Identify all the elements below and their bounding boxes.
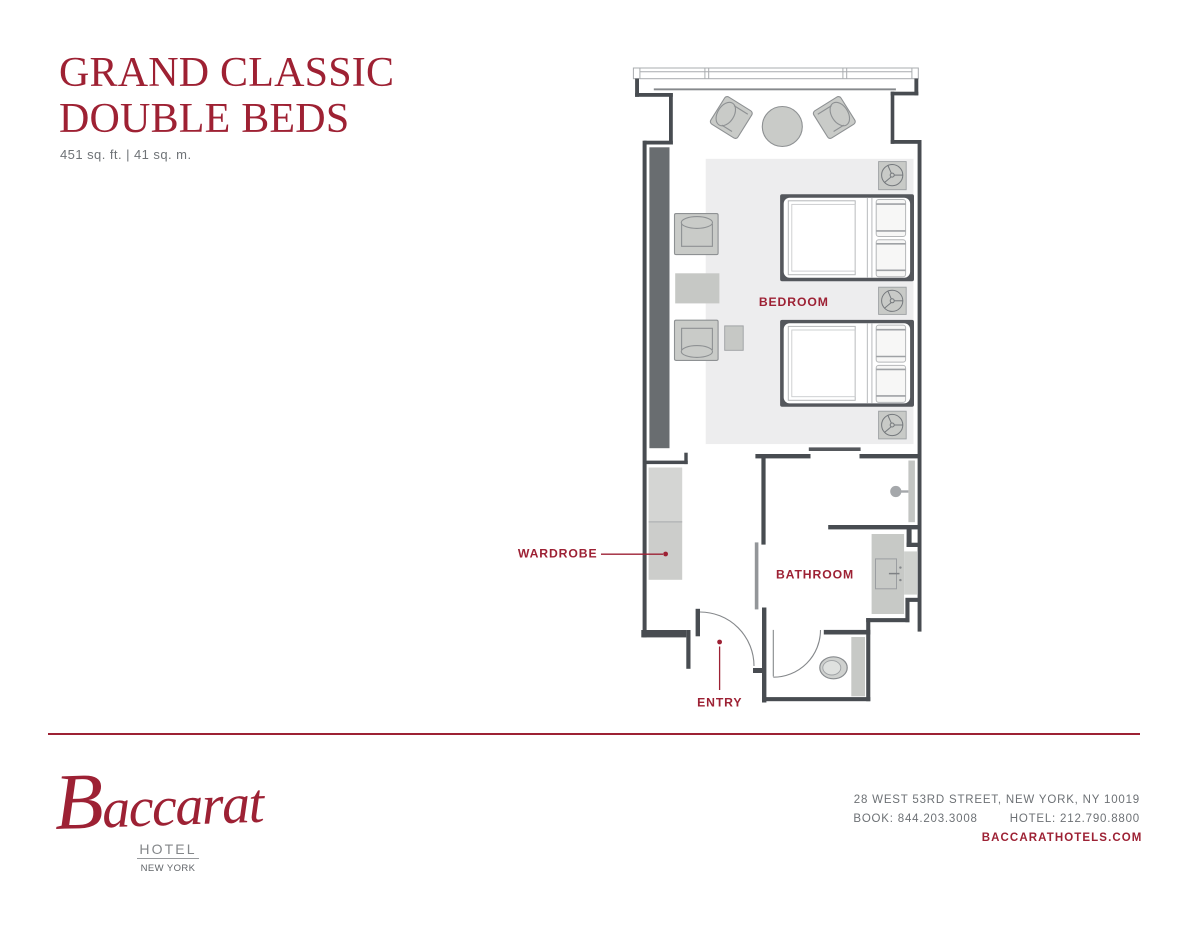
svg-text:ENTRY: ENTRY bbox=[697, 695, 742, 709]
svg-text:BATHROOM: BATHROOM bbox=[776, 567, 854, 581]
svg-text:BEDROOM: BEDROOM bbox=[759, 295, 829, 309]
svg-text:WARDROBE: WARDROBE bbox=[518, 547, 598, 561]
